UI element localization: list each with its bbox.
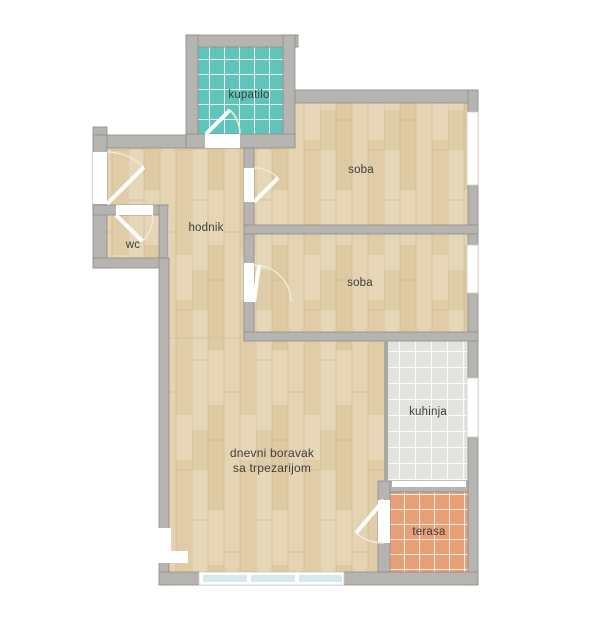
door-opening-wc	[116, 205, 153, 215]
floorplan-drawing	[0, 0, 600, 635]
room-label-terasa: terasa	[412, 526, 445, 538]
floorplan-canvas: kupatilo soba soba hodnik wc dnevni bora…	[0, 0, 600, 635]
window-soba-1	[467, 112, 478, 185]
room-label-wc: wc	[126, 239, 140, 251]
door-opening-soba-2	[244, 263, 254, 302]
room-label-soba-2: soba	[347, 277, 373, 289]
room-label-line-1: dnevni boravak	[230, 446, 314, 461]
door-opening-entrance	[93, 152, 107, 204]
door-opening-soba-1	[244, 168, 254, 202]
room-label-kuhinja: kuhinja	[409, 406, 447, 418]
window-kuhinja-terasa	[392, 481, 466, 487]
floor-wc	[107, 215, 159, 258]
window-soba-2	[467, 245, 478, 293]
window-kuhinja	[467, 378, 478, 437]
room-label-dnevni-boravak: dnevni boravak sa trpezarijom	[230, 446, 314, 476]
room-label-kupatilo: kupatilo	[228, 89, 269, 101]
wall-niche-horizontal	[155, 551, 188, 563]
door-opening-kupatilo	[205, 134, 240, 148]
kitchen-partition-line	[384, 341, 388, 481]
room-label-soba-1: soba	[348, 164, 374, 176]
room-label-line-2: sa trpezarijom	[230, 461, 314, 476]
room-label-hodnik: hodnik	[188, 222, 223, 234]
